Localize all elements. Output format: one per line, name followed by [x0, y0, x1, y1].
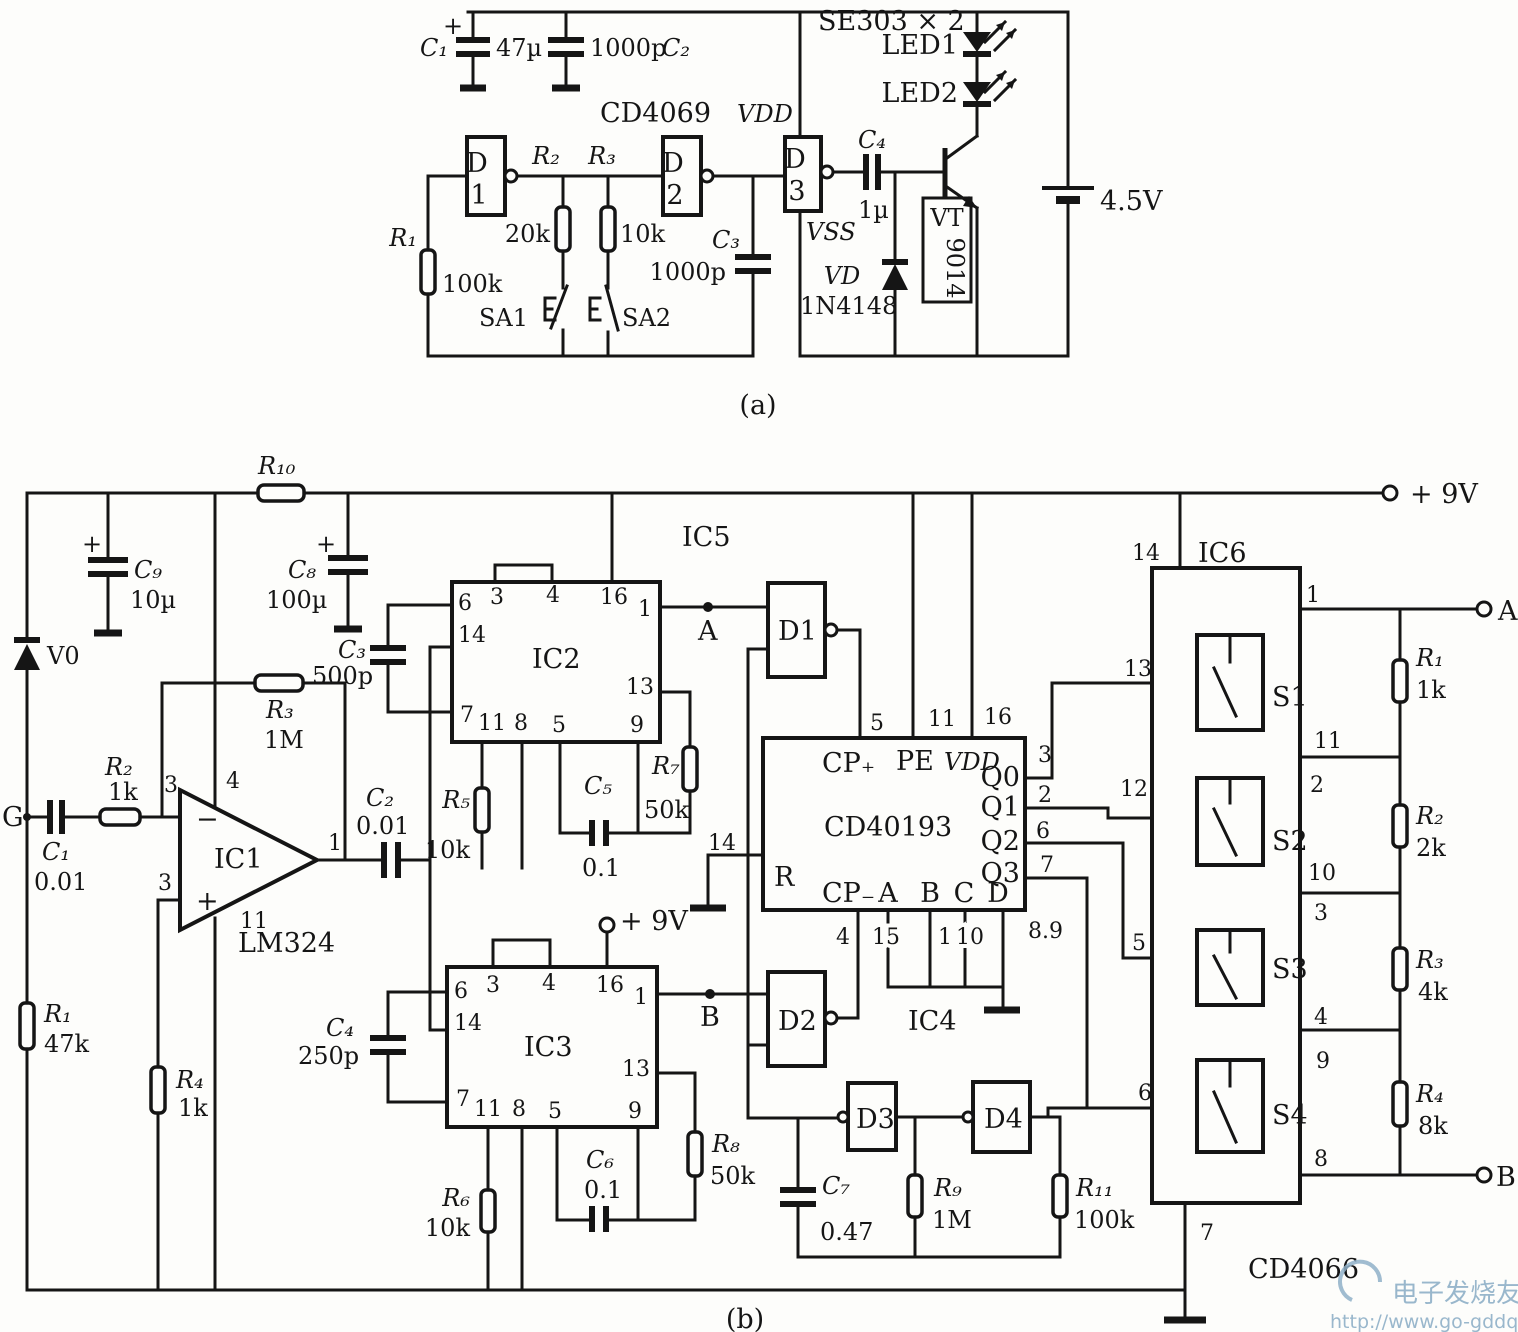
resistor-r11: [1053, 1175, 1067, 1217]
resistor-r4b: [151, 1067, 165, 1113]
label-ic4: IC4: [908, 1006, 957, 1037]
resistor-r2a: [556, 207, 570, 251]
ic2-p6: 6: [458, 591, 472, 616]
schematic-page: C₁ + 47µ 1000p C₂ CD4069 VDD D 1 D 2 D 3…: [0, 0, 1518, 1332]
label-r2a: R₂: [531, 142, 560, 170]
diode-v0: [14, 640, 40, 670]
terminal-a: [1477, 602, 1491, 616]
s4-ctl-6: 6: [1138, 1081, 1152, 1106]
label-r3b: R₃: [265, 696, 294, 724]
label-d1b: D1: [778, 616, 817, 647]
label-ic1-pin3v: 3: [158, 871, 172, 896]
label-c2b: C₂: [366, 784, 394, 812]
ic2-p8: 8: [514, 711, 528, 736]
label-ic5: IC5: [682, 522, 731, 553]
label-vss: VSS: [806, 218, 856, 246]
q3-pin7: 7: [1040, 853, 1054, 878]
edge-pin11: 11: [1314, 729, 1342, 754]
capacitor-c5: [592, 820, 606, 846]
label-c7: C₇: [822, 1172, 850, 1200]
cd-b: B: [920, 878, 940, 909]
edge-pin1: 1: [1306, 583, 1320, 608]
label-r3a: R₃: [587, 142, 616, 170]
label-c3b-val: 500p: [312, 662, 373, 690]
label-led2: LED2: [882, 78, 958, 109]
label-r10: R₁₀: [257, 452, 296, 480]
label-r7-val: 50k: [644, 796, 690, 824]
ic3-p3: 3: [486, 973, 500, 998]
label-cd4069: CD4069: [600, 98, 711, 129]
capacitor-c4a: [866, 154, 878, 190]
capacitor-c1a: [456, 40, 490, 54]
label-vt-val: 9014: [941, 237, 969, 298]
edge-pin4: 4: [1314, 1005, 1328, 1030]
label-battery: 4.5V: [1100, 186, 1163, 217]
led-led1: [963, 22, 1015, 54]
capacitor-c2a: [548, 40, 584, 54]
label-vt: VT: [929, 204, 963, 232]
label-s2: S2: [1272, 826, 1308, 857]
label-lr3-val: 4k: [1418, 978, 1448, 1006]
label-r8-val: 50k: [710, 1162, 756, 1190]
section-a: C₁ + 47µ 1000p C₂ CD4069 VDD D 1 D 2 D 3…: [388, 6, 1163, 421]
label-r1b-val: 47k: [44, 1030, 90, 1058]
resistor-r8: [688, 1132, 702, 1176]
label-r1a-val: 100k: [442, 270, 503, 298]
label-r4b: R₄: [175, 1066, 204, 1094]
cd-r: R: [774, 862, 795, 893]
label-r5: R₅: [441, 786, 470, 814]
section-b: + 9V R₁₀ C₉ 10µ + C₈ 100µ + C₃ 500p V0 R…: [2, 452, 1518, 1332]
ic2-p13: 13: [626, 675, 654, 700]
label-r11: R₁₁: [1075, 1174, 1113, 1202]
q2-pin6: 6: [1036, 819, 1050, 844]
label-ic1-pin1: 1: [328, 831, 342, 856]
label-c2a: C₂: [662, 34, 690, 62]
label-r5-val: 10k: [425, 836, 471, 864]
cd-pin16: 16: [984, 705, 1012, 730]
label-lr2-val: 2k: [1416, 834, 1446, 862]
ic3-p5: 5: [548, 1099, 562, 1124]
label-led1: LED1: [882, 30, 958, 61]
cd-cpd: CP₋: [822, 878, 875, 909]
edge-pin10: 10: [1308, 861, 1336, 886]
q1-pin2: 2: [1038, 783, 1052, 808]
label-c3a: C₃: [712, 226, 740, 254]
label-r2b: R₂: [104, 753, 133, 781]
cd-pin89: 8.9: [1028, 919, 1063, 944]
label-node-a: A: [697, 616, 718, 647]
watermark-url: http://www.go-gddq.com: [1330, 1311, 1518, 1332]
ic2-p4: 4: [546, 583, 560, 608]
node-g-dot: [23, 813, 31, 821]
label-lm324: LM324: [238, 928, 335, 959]
label-d3a-n: 3: [788, 176, 805, 207]
edge-pin3: 3: [1314, 901, 1328, 926]
label-d3b: D3: [856, 1104, 895, 1135]
label-r3a-val: 10k: [620, 220, 666, 248]
ic2-p7: 7: [460, 703, 474, 728]
label-r2a-val: 20k: [505, 220, 551, 248]
label-r1b: R₁: [43, 1000, 72, 1028]
label-c4b: C₄: [326, 1014, 354, 1042]
label-lr4: R₄: [1415, 1080, 1444, 1108]
label-c3b: C₃: [338, 636, 366, 664]
label-c2b-val: 0.01: [356, 812, 409, 840]
cd-d: D: [987, 878, 1009, 909]
ic3-p13: 13: [622, 1057, 650, 1082]
cd-pin15: 15: [872, 925, 900, 950]
label-9v-top: + 9V: [1410, 479, 1478, 510]
cd-cpu: CP₊: [822, 748, 875, 779]
label-d2b: D2: [778, 1006, 817, 1037]
cd-q2: Q2: [981, 826, 1020, 857]
ic3-p16: 16: [596, 973, 624, 998]
label-lr1: R₁: [1415, 644, 1444, 672]
resistor-r7: [683, 747, 697, 791]
label-lr3: R₃: [1415, 946, 1444, 974]
resistor-r5: [475, 788, 489, 832]
label-cd40193: CD40193: [824, 812, 952, 843]
label-c6: C₆: [586, 1146, 614, 1174]
edge-pin2: 2: [1310, 773, 1324, 798]
cd-pin5: 5: [870, 711, 884, 736]
ic2-p9: 9: [630, 713, 644, 738]
label-c8-plus: +: [316, 530, 336, 558]
label-c3a-val: 1000p: [650, 258, 726, 286]
diode-vd: [882, 262, 908, 290]
s1-ctl-13: 13: [1124, 657, 1152, 682]
label-vdd-a: VDD: [737, 100, 793, 128]
resistor-r10: [258, 485, 304, 501]
label-d4b: D4: [984, 1104, 1023, 1135]
label-c4a: C₄: [858, 126, 886, 154]
ic3-p1: 1: [634, 985, 648, 1010]
cd-pin1: 1: [938, 925, 952, 950]
ic3-p9: 9: [628, 1099, 642, 1124]
label-d2a: D: [662, 148, 684, 179]
watermark-cn: 电子发烧友: [1392, 1279, 1518, 1309]
label-r2b-val: 1k: [108, 778, 138, 806]
label-r1a: R₁: [388, 224, 417, 252]
label-ic2: IC2: [532, 644, 581, 675]
ic3-p8: 8: [512, 1097, 526, 1122]
label-c7-val: 0.47: [820, 1218, 873, 1246]
label-lr1-val: 1k: [1416, 676, 1446, 704]
capacitor-c6: [592, 1206, 606, 1232]
label-r8: R₈: [711, 1130, 740, 1158]
capacitor-c1b: [50, 800, 62, 834]
analog-switch-s4: [1197, 1060, 1263, 1152]
label-term-a: A: [1497, 596, 1518, 627]
ic3-p4: 4: [542, 971, 556, 996]
label-c4b-val: 250p: [298, 1042, 359, 1070]
label-d2a-n: 2: [666, 180, 683, 211]
cd-pin11: 11: [928, 707, 956, 732]
ic2-p5: 5: [552, 713, 566, 738]
ic6-pin7: 7: [1200, 1221, 1214, 1246]
circuit-schematic: C₁ + 47µ 1000p C₂ CD4069 VDD D 1 D 2 D 3…: [0, 0, 1518, 1332]
label-s3: S3: [1272, 954, 1308, 985]
label-ic1-minus: −: [196, 804, 219, 835]
resistor-r1a: [421, 250, 435, 294]
resistor-r3b: [255, 675, 303, 691]
capacitor-c4b: [370, 1038, 406, 1052]
s2-ctl-12: 12: [1120, 777, 1148, 802]
label-ic6: IC6: [1198, 538, 1247, 569]
cd-pin10: 10: [956, 925, 984, 950]
cd-pe: PE: [896, 746, 934, 777]
label-c9-plus: +: [82, 530, 102, 558]
node-b-dot: [705, 989, 715, 999]
label-r6-val: 10k: [425, 1214, 471, 1242]
label-sa1: SA1: [479, 304, 528, 332]
led-led2: [963, 72, 1015, 104]
label-r6: R₆: [441, 1184, 470, 1212]
label-s4: S4: [1272, 1100, 1308, 1131]
label-vd-val: 1N4148: [800, 292, 897, 320]
cd-q0: Q0: [981, 762, 1020, 793]
ic6-pin14: 14: [1132, 541, 1160, 566]
capacitor-c3a: [735, 257, 771, 271]
ic2-p14: 14: [458, 623, 486, 648]
label-r9-val: 1M: [932, 1206, 972, 1234]
label-c8-val: 100µ: [266, 586, 327, 614]
resistor-r2b: [100, 809, 140, 825]
label-r9: R₉: [933, 1174, 962, 1202]
cd-a: A: [877, 878, 898, 909]
resistor-r1b: [20, 1003, 34, 1049]
ic2-p11: 11: [478, 711, 506, 736]
s3-ctl-5: 5: [1132, 931, 1146, 956]
analog-switch-s2: [1197, 778, 1263, 865]
edge-pin9: 9: [1316, 1049, 1330, 1074]
label-lr4-val: 8k: [1418, 1112, 1448, 1140]
ic2-p1: 1: [638, 597, 652, 622]
label-c1b: C₁: [42, 838, 70, 866]
ic3-p14: 14: [454, 1011, 482, 1036]
label-c5-val: 0.1: [582, 854, 620, 882]
resistor-r6: [481, 1190, 495, 1232]
cd-pin14: 14: [708, 831, 736, 856]
label-vd: VD: [824, 262, 861, 290]
label-g: G: [2, 802, 24, 833]
ic3-p11: 11: [474, 1097, 502, 1122]
label-node-b: B: [700, 1002, 720, 1033]
ic2-p3: 3: [490, 585, 504, 610]
q0-pin3: 3: [1038, 743, 1052, 768]
label-ic1-pin2: 3: [164, 773, 178, 798]
label-ic1: IC1: [214, 844, 263, 875]
resistor-r9: [908, 1175, 922, 1217]
label-term-b: B: [1496, 1162, 1516, 1193]
label-v0: V0: [46, 642, 80, 670]
terminal-b: [1477, 1168, 1491, 1182]
label-d3a: D: [784, 144, 806, 175]
ic2-p16: 16: [600, 585, 628, 610]
label-caption-a: (a): [739, 390, 776, 421]
capacitor-c8: [328, 558, 368, 572]
ic3-p7: 7: [456, 1087, 470, 1112]
label-d1a: D: [466, 148, 488, 179]
label-c9: C₉: [134, 556, 162, 584]
label-c1a-val: 47µ: [496, 34, 542, 62]
label-r3b-val: 1M: [264, 726, 304, 754]
label-d1a-n: 1: [470, 180, 487, 211]
capacitor-c3b: [370, 648, 406, 662]
ic3-p6: 6: [454, 979, 468, 1004]
label-c9-val: 10µ: [130, 586, 176, 614]
terminal-9v-top: [1383, 486, 1397, 500]
label-c1b-val: 0.01: [34, 868, 87, 896]
capacitor-c7: [780, 1190, 816, 1204]
label-caption-b: (b): [726, 1304, 764, 1332]
label-ic1-pin4: 4: [226, 769, 240, 794]
label-c6-val: 0.1: [584, 1176, 622, 1204]
label-c8: C₈: [288, 556, 316, 584]
label-c4a-val: 1µ: [858, 196, 889, 224]
label-s1: S1: [1272, 682, 1308, 713]
cd-pin4: 4: [836, 925, 850, 950]
analog-switch-s1: [1197, 635, 1263, 730]
label-c5: C₅: [584, 772, 612, 800]
capacitor-c9: [88, 560, 128, 574]
label-sa2: SA2: [622, 304, 671, 332]
label-r11-val: 100k: [1074, 1206, 1135, 1234]
cd-c: C: [954, 878, 975, 909]
label-c1a-plus: +: [443, 12, 463, 40]
resistor-r3a: [601, 207, 615, 251]
label-c2a-val: 1000p: [590, 34, 666, 62]
terminal-9v-mid: [600, 918, 614, 932]
analog-switch-s3: [1197, 930, 1263, 1005]
label-ic1-plus: +: [196, 886, 219, 917]
label-ic3: IC3: [524, 1032, 573, 1063]
cd-q1: Q1: [981, 792, 1020, 823]
edge-pin8: 8: [1314, 1147, 1328, 1172]
label-9v-mid: + 9V: [620, 906, 688, 937]
label-r7: R₇: [651, 752, 680, 780]
label-r4b-val: 1k: [178, 1094, 208, 1122]
battery-4v5: [1042, 188, 1094, 200]
capacitor-c2b: [384, 842, 398, 878]
label-lr2: R₂: [1415, 802, 1444, 830]
node-a-dot: [703, 602, 713, 612]
